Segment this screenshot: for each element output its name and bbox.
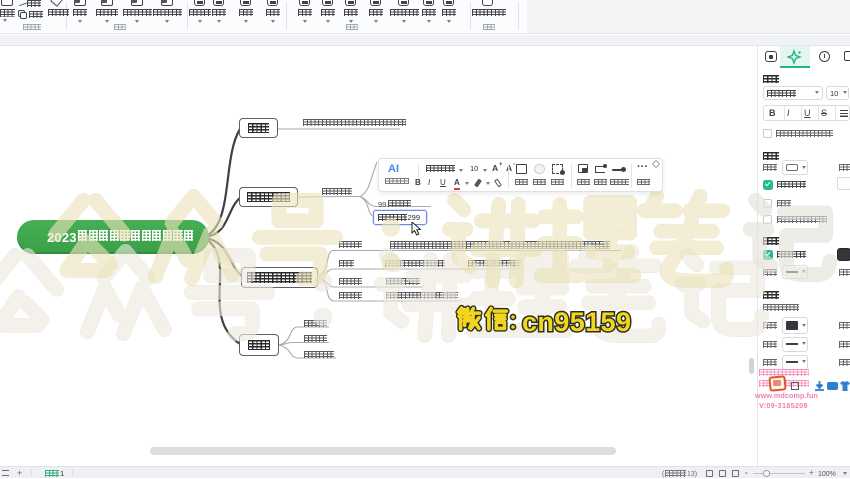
svg-text:cn95159: cn95159 — [522, 307, 631, 337]
